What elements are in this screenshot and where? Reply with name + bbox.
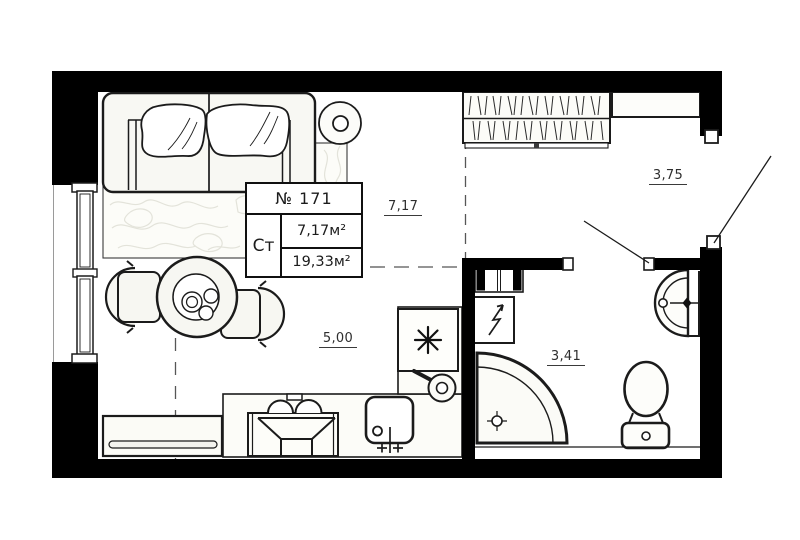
pillow-right — [206, 104, 289, 156]
unit-type-label: Ст — [247, 215, 282, 276]
wardrobe — [463, 92, 610, 148]
sink-drain — [373, 427, 382, 436]
dimension-bathroom: 3,41 — [545, 349, 587, 366]
unit-living-area: 7,17м² — [282, 215, 361, 249]
washbasin — [655, 270, 699, 336]
unit-number: № 171 — [247, 184, 361, 215]
chair-left — [106, 261, 160, 333]
stove-handle — [287, 394, 302, 400]
wardrobe-track-notch — [534, 143, 539, 148]
floor-plan: 7,17 3,75 5,00 3,41 № 171 Ст 7,17м² 19,3… — [0, 0, 800, 540]
hall-shelf — [612, 92, 700, 117]
toilet — [622, 362, 669, 448]
floor-lamp-icon — [319, 102, 361, 144]
wall-bath-partition — [462, 258, 475, 459]
bed — [103, 93, 315, 192]
wall-bath-top-left — [462, 258, 570, 270]
wall-left-upper — [52, 71, 98, 185]
bathroom-door — [563, 221, 654, 270]
fridge — [398, 309, 458, 371]
dining-table — [157, 257, 237, 337]
floor-plan-drawing — [0, 0, 800, 540]
entrance-door-leaf — [714, 156, 771, 243]
water-heater — [474, 297, 514, 343]
dimension-hallway: 3,75 — [646, 168, 690, 185]
vent-shaft — [475, 268, 523, 292]
toilet-flush-button — [642, 432, 650, 440]
dimension-living-room: 7,17 — [384, 199, 422, 216]
entrance-door — [705, 130, 771, 249]
dimension-kitchen-zone: 5,00 — [317, 331, 359, 348]
window — [54, 183, 98, 363]
door-stop-right — [644, 258, 654, 270]
bathroom-door-leaf — [584, 221, 649, 263]
pillow-left — [141, 104, 205, 156]
wall-right-upper — [700, 71, 722, 136]
snowflake-icon — [415, 327, 441, 353]
sideboard-cabinet — [103, 416, 222, 456]
wall-top — [52, 71, 701, 92]
wall-bottom — [52, 459, 722, 478]
wall-bath-top-right — [648, 258, 700, 270]
door-stop-top — [705, 130, 718, 143]
door-stop-left — [563, 258, 573, 270]
unit-card: № 171 Ст 7,17м² 19,33м² — [245, 182, 363, 278]
corner-shower — [477, 353, 567, 443]
wall-right-lower — [700, 247, 722, 478]
unit-total-area: 19,33м² — [282, 249, 361, 276]
